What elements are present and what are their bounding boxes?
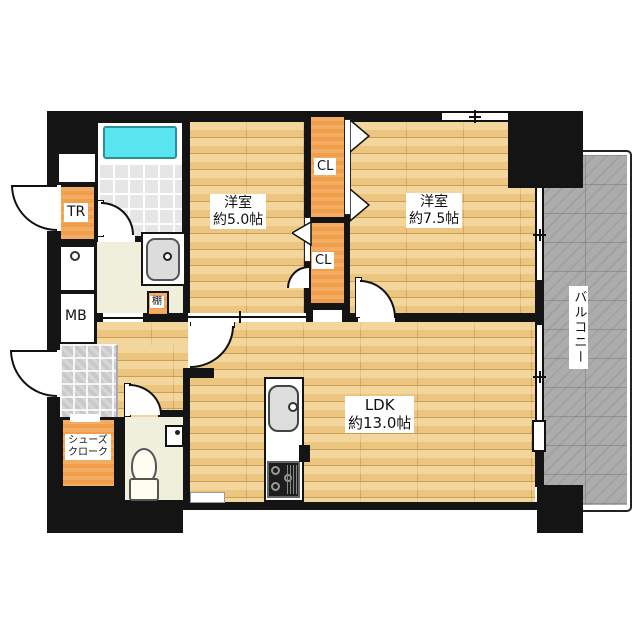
meter-box-label: MB (62, 307, 90, 326)
wall-toilet-top-stub (158, 410, 190, 417)
bedroom1-name: 洋室 (213, 195, 263, 212)
bedroom2-size: 約7.5帖 (409, 211, 459, 228)
bedroom1-size: 約5.0帖 (213, 212, 263, 229)
window-tick-top (469, 110, 481, 123)
balcony-label: バルコニー (569, 286, 588, 369)
shoe-closet-label-line2: クローク (68, 447, 108, 459)
kitchen-faucet (288, 402, 298, 412)
bedroom2-label: 洋室 約7.5帖 (406, 193, 462, 228)
shoe-closet-door-gap (70, 414, 100, 422)
wall-bottom-right-block (537, 485, 583, 533)
bottom-wall-inset (190, 492, 225, 503)
washbasin-sink (146, 238, 180, 281)
bathtub (103, 126, 177, 159)
wall-hall-ldk (183, 368, 190, 503)
shelf-label: 棚 (150, 296, 164, 308)
trunk-door-arc (11, 185, 57, 231)
stove (267, 461, 300, 498)
ldk-size: 約13.0帖 (348, 415, 411, 433)
wall-right-seg1 (535, 280, 544, 325)
toilet-hand-basin-faucet (175, 430, 180, 435)
closet-upper-door-triangle-2 (350, 189, 370, 222)
window-tick-right-1 (533, 229, 546, 241)
stove-burner-2 (271, 482, 280, 491)
kitchen-wall-notch (299, 445, 310, 462)
entrance-step-line (116, 345, 118, 417)
ldk-name: LDK (348, 397, 411, 415)
entrance-floor (60, 344, 117, 417)
window-tick-right-2 (533, 371, 546, 383)
closet-lower-label: CL (312, 252, 334, 269)
ldk-label: LDK 約13.0帖 (345, 396, 414, 433)
pipe-space-circle (70, 251, 80, 261)
shoe-closet-label: シューズ クローク (65, 434, 111, 460)
bedroom2-name: 洋室 (409, 194, 459, 211)
sliding-door-tick (234, 311, 246, 323)
sliding-door-line (188, 316, 306, 318)
bedroom1-label: 洋室 約5.0帖 (210, 194, 266, 229)
closet-lower-door-triangle (292, 222, 312, 246)
wall-washroom-bottom-a (95, 313, 103, 322)
wall-bedroom2-ldk (395, 313, 537, 322)
trunk-room-label: TR (64, 203, 88, 222)
balcony-door (532, 420, 546, 452)
closet-upper-label: CL (314, 158, 336, 175)
wall-toilet-left (117, 417, 125, 503)
stove-grill (287, 465, 298, 494)
wall-washroom-bedroom1 (183, 111, 190, 322)
shoe-closet-label-line1: シューズ (68, 435, 108, 447)
wall-bottom-thin (183, 502, 540, 510)
washroom-sliding-door-line (103, 317, 143, 319)
stove-burner-1 (271, 466, 280, 475)
wall-right-seg2 (535, 452, 544, 487)
wall-recess (57, 152, 97, 184)
wall-below-toilet (117, 500, 183, 533)
closet-column-opening (313, 310, 342, 322)
floor-plan: 洋室 約5.0帖 洋室 約7.5帖 LDK 約13.0帖 バルコニー CL CL… (0, 0, 640, 640)
wall-corner-top-right (508, 111, 583, 188)
closet-upper-door-triangle-1 (350, 120, 370, 153)
toilet-tank (129, 478, 159, 501)
wall-stub-ldk (190, 368, 214, 378)
wall-bottom-left-block (47, 487, 117, 533)
washbasin-faucet (163, 252, 172, 261)
entrance-door-arc (10, 350, 57, 397)
hallway-floor-upper (95, 322, 188, 345)
toilet-hand-basin (165, 425, 184, 447)
